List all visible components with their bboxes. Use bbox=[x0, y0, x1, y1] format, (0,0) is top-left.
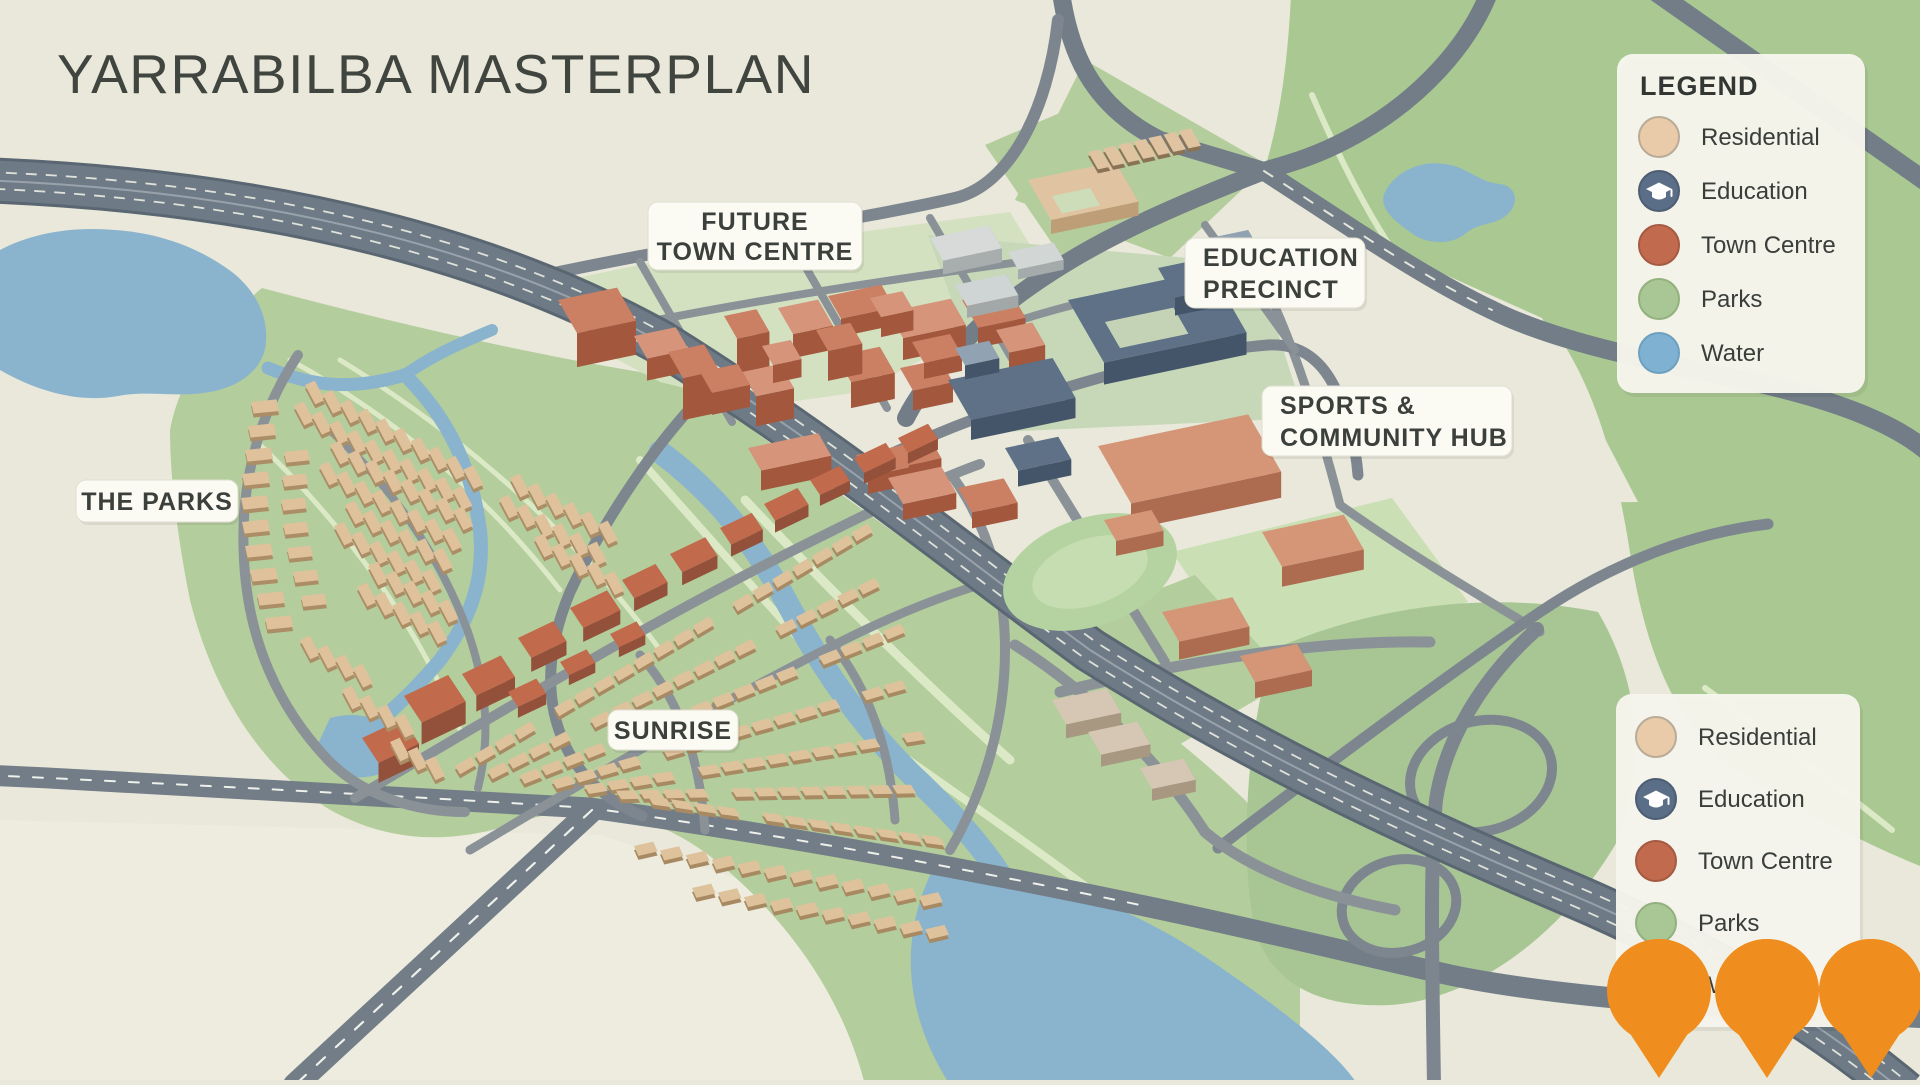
svg-text:SPORTS &: SPORTS & bbox=[1280, 392, 1416, 420]
svg-text:Town Centre: Town Centre bbox=[1701, 232, 1836, 259]
svg-text:TOWN CENTRE: TOWN CENTRE bbox=[657, 238, 854, 266]
svg-text:Education: Education bbox=[1698, 786, 1805, 813]
svg-text:SUNRISE: SUNRISE bbox=[614, 717, 732, 745]
svg-text:Parks: Parks bbox=[1698, 910, 1759, 937]
svg-text:Education: Education bbox=[1701, 178, 1808, 205]
svg-text:PRECINCT: PRECINCT bbox=[1203, 276, 1339, 304]
svg-text:EDUCATION: EDUCATION bbox=[1203, 244, 1359, 272]
svg-text:COMMUNITY HUB: COMMUNITY HUB bbox=[1280, 424, 1508, 452]
svg-text:Town Centre: Town Centre bbox=[1698, 848, 1833, 875]
svg-text:LEGEND: LEGEND bbox=[1640, 71, 1759, 101]
svg-text:Water: Water bbox=[1701, 340, 1764, 367]
svg-text:YARRABILBA MASTERPLAN: YARRABILBA MASTERPLAN bbox=[57, 43, 815, 105]
svg-text:FUTURE: FUTURE bbox=[701, 208, 808, 236]
svg-text:THE PARKS: THE PARKS bbox=[81, 488, 233, 516]
svg-text:Parks: Parks bbox=[1701, 286, 1762, 313]
svg-text:Residential: Residential bbox=[1698, 724, 1817, 751]
svg-text:Residential: Residential bbox=[1701, 124, 1820, 151]
